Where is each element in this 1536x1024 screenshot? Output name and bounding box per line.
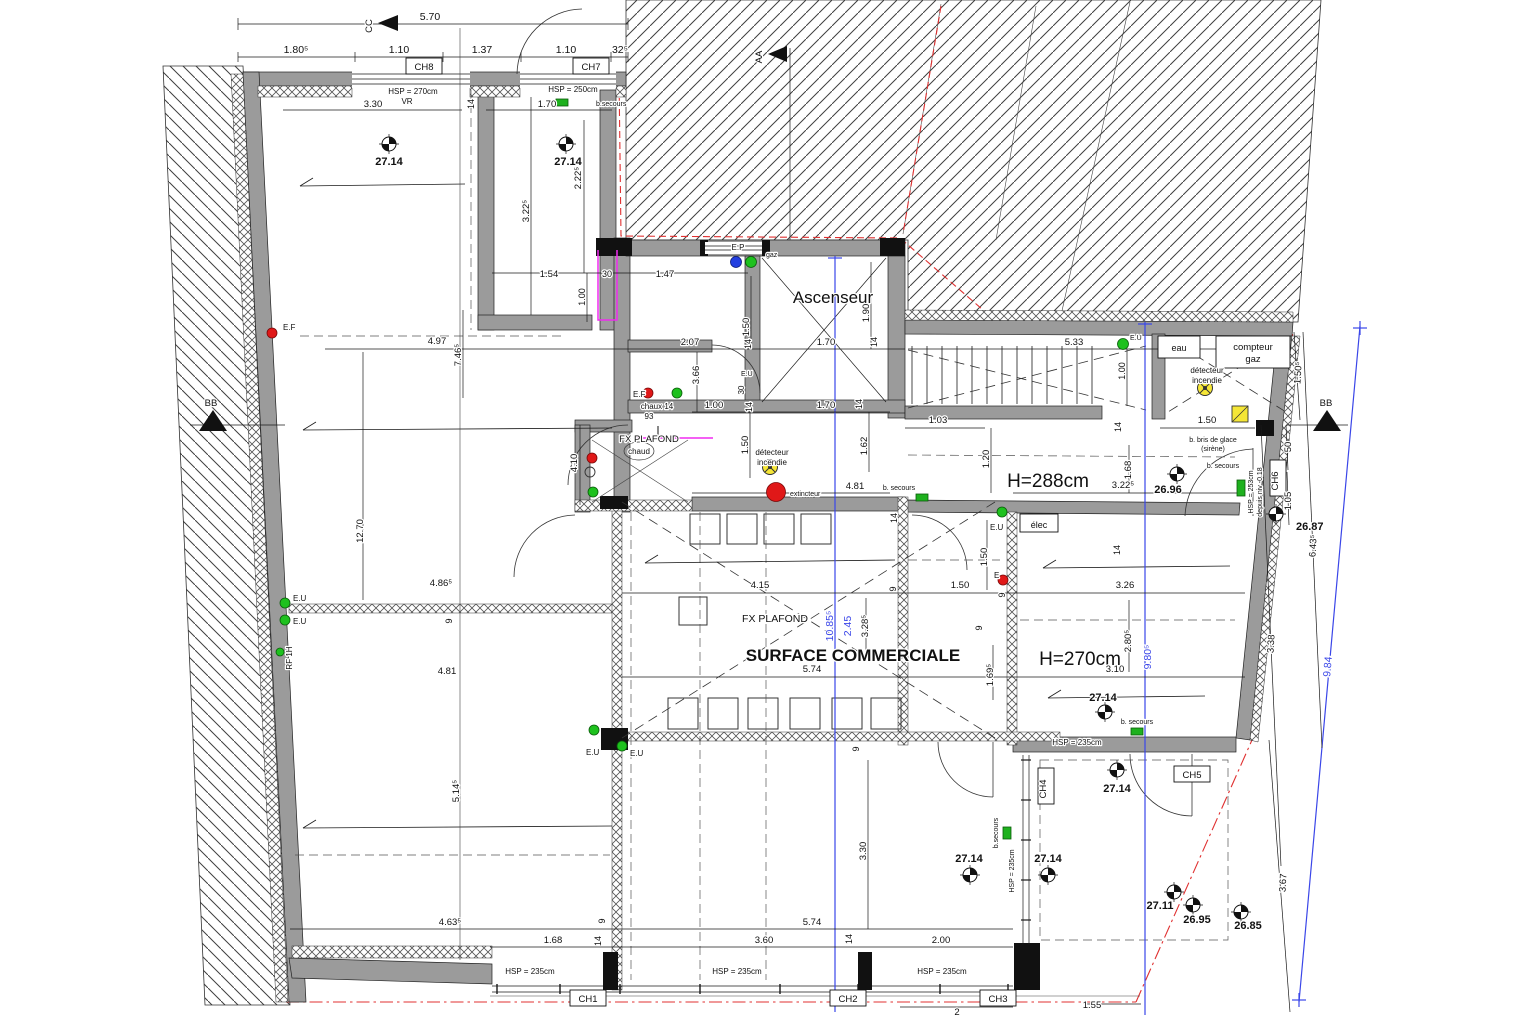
elevation-marker-icon xyxy=(1167,464,1187,484)
chamber-label-ch2: CH2 xyxy=(838,994,857,1005)
floor-plan-svg: 5.70 1.80⁵ 1.10 1.37 1.10 32⁵ CH8 CH7 HS… xyxy=(0,0,1536,1024)
dim-label: 1.50 xyxy=(979,548,990,567)
eu-dot-icon xyxy=(997,507,1007,517)
dim-label: 1.90 xyxy=(861,304,872,323)
showcase-row-top xyxy=(690,514,831,544)
fx-plafond-label: FX PLAFOND xyxy=(742,613,808,625)
dim-label: 1.68 xyxy=(1123,461,1134,480)
glass-break-label: (sirène) xyxy=(1201,446,1225,453)
section-label-cc: CC xyxy=(364,19,375,33)
dim-label: 4.81 xyxy=(846,481,865,492)
eu-label: E.U xyxy=(293,594,307,603)
dim-label: 1.20 xyxy=(981,450,992,469)
dim-label: 3.22⁵ xyxy=(1112,480,1134,491)
dim-label-blue: 10.85⁵ xyxy=(824,611,836,642)
dim-label: 14 xyxy=(743,339,753,349)
ef-label: E.F xyxy=(283,323,296,332)
dim-label: 14 xyxy=(466,99,476,109)
dim-label: 3.22⁵ xyxy=(521,200,532,222)
elevation-marker-icon xyxy=(1164,882,1184,902)
fx-plafond-box xyxy=(679,597,707,625)
level-label: 26.96 xyxy=(1154,484,1182,496)
chamber-label-ch3: CH3 xyxy=(988,994,1007,1005)
ceiling-height-label: HSP = 235cm xyxy=(505,967,555,976)
dim-label: 14 xyxy=(889,513,899,523)
eu-dot-icon xyxy=(589,725,599,735)
ceiling-height-label: HSP = 235cm xyxy=(1052,738,1102,747)
eu-label: E.U xyxy=(741,371,753,378)
site-hatch-top-right xyxy=(626,0,1321,322)
ep-label: E.P xyxy=(732,243,745,252)
ep-dot-icon xyxy=(746,257,757,268)
dim-label: 14 xyxy=(844,934,854,944)
dim-label: 5.74 xyxy=(803,917,822,928)
dim-label: 1.00 xyxy=(577,288,587,306)
dim-label: 93 xyxy=(645,412,654,421)
section-bb-right-icon xyxy=(1313,410,1341,431)
elec-label: élec xyxy=(1031,520,1048,530)
dim-label: 5.70 xyxy=(420,11,441,23)
dim-label: 7.46⁵ xyxy=(453,344,464,366)
dim-label: 2.00 xyxy=(932,935,951,946)
dim-label: 14 xyxy=(854,399,864,409)
elevation-marker-icon xyxy=(1095,702,1115,722)
dim-label: 50 xyxy=(1283,442,1294,453)
dim-label: 2 xyxy=(954,1007,959,1018)
chamber-label-ch4: CH4 xyxy=(1038,779,1049,798)
dim-label: 9 xyxy=(597,918,607,923)
level-label: 27.14 xyxy=(1089,692,1117,704)
dim-label: 9 xyxy=(851,746,861,751)
exit-block-icon xyxy=(1131,728,1143,735)
detector-label: incendie xyxy=(1192,376,1222,385)
dim-label: 14 xyxy=(869,337,879,347)
dim-label: 9 xyxy=(974,625,984,630)
fx-plafond-label: FX PLAFOND xyxy=(619,434,679,445)
dim-label: 1.68 xyxy=(544,935,563,946)
dim-label: 14 xyxy=(1112,545,1122,555)
eu-label: E.U xyxy=(630,749,644,758)
section-label-bb: BB xyxy=(1320,398,1333,409)
dim-label: 1.00 xyxy=(705,400,724,411)
elevation-marker-icon xyxy=(556,134,576,154)
level-label: 27.14 xyxy=(1103,783,1131,795)
chaux-label: chaux 14 xyxy=(641,402,674,411)
chamber-label-ch8: CH8 xyxy=(414,62,433,73)
elevation-marker-icon xyxy=(1231,902,1251,922)
chamber-label-ch1: CH1 xyxy=(578,994,597,1005)
ef-dot-icon xyxy=(267,328,277,338)
exit-block-icon xyxy=(916,494,928,501)
exit-label: b. secours xyxy=(1207,463,1240,470)
elevation-marker-icon xyxy=(960,865,980,885)
dim-label: 1.50 xyxy=(1198,415,1217,426)
dim-label: 5.14⁵ xyxy=(451,780,462,802)
dim-label: 5.74 xyxy=(803,664,822,675)
eu-dot-icon xyxy=(1118,339,1129,350)
elevation-marker-icon xyxy=(1183,895,1203,915)
dim-label: 1.80⁵ xyxy=(284,44,309,56)
dim-label: 1.50⁵ xyxy=(1292,361,1304,384)
eu-dot-icon xyxy=(588,487,598,497)
level-label: 27.14 xyxy=(554,156,582,168)
level-label: 27.11 xyxy=(1147,900,1174,912)
exit-block-icon xyxy=(556,99,568,106)
eu-label: E.U xyxy=(293,617,307,626)
section-label-aa: AA xyxy=(754,50,765,63)
ceiling-height-label: HSP = 250cm xyxy=(548,85,598,94)
chaud-label: chaud xyxy=(628,447,650,456)
eu-dot-icon xyxy=(280,598,290,608)
elevation-marker-icon xyxy=(379,134,399,154)
dim-label: 1.62 xyxy=(859,437,870,456)
detector-label: incendie xyxy=(757,458,787,467)
eu-dot-icon xyxy=(280,615,290,625)
dim-label: 1.50 xyxy=(740,436,751,455)
chamber-label-ch5: CH5 xyxy=(1182,770,1201,781)
gas-meter-label: compteur xyxy=(1233,342,1273,353)
exit-label: b.secours xyxy=(993,817,1000,848)
dim-label: 3.67 xyxy=(1278,873,1290,892)
dim-label: 3.10 xyxy=(1106,664,1125,675)
chamber-label-ch7: CH7 xyxy=(581,62,600,73)
ep-dot-icon xyxy=(731,257,742,268)
dim-label: 3.26 xyxy=(1116,580,1135,591)
dim-label: 2.80⁵ xyxy=(1123,630,1134,652)
ceiling-height-label: HSP = 270cm xyxy=(388,87,438,96)
dim-label: 1.70 xyxy=(817,337,836,348)
dim-label: 1.37 xyxy=(472,44,493,56)
dim-label: 1.03 xyxy=(929,415,948,426)
eu-dot-icon xyxy=(276,648,284,656)
detector-label: détecteur xyxy=(1190,366,1224,375)
elevation-marker-icon xyxy=(1107,760,1127,780)
dim-label: 32⁵ xyxy=(612,44,628,56)
exit-block-icon xyxy=(1237,480,1245,496)
gaz-small-label: gaz xyxy=(766,252,778,259)
ceiling-height-label: HSP = 235cm xyxy=(712,967,762,976)
dim-label-blue: 9.80⁵ xyxy=(1142,645,1154,670)
dim-label: 1.70 xyxy=(538,99,557,110)
dim-label: 3.66 xyxy=(691,366,702,385)
eu-label: E.U xyxy=(586,748,600,757)
extinguisher-icon xyxy=(767,483,786,502)
dim-label: 3.38 xyxy=(1266,634,1278,653)
dim-label: 1.10 xyxy=(389,44,410,56)
level-label: 27.14 xyxy=(955,853,983,865)
dim-label: 1.00 xyxy=(1117,362,1127,380)
ceiling-height-label: depuis niv -0.18 xyxy=(1257,467,1264,517)
dim-label: 3.30 xyxy=(858,842,869,861)
ef-label: E.F xyxy=(633,390,646,399)
dim-label: 6.43⁵ xyxy=(1307,534,1319,557)
dim-label: 1.50 xyxy=(741,318,752,337)
dim-label-blue: 9.84 xyxy=(1321,656,1335,678)
ceiling-height-label: HSP = 235cm xyxy=(1009,849,1016,892)
dim-label: 9 xyxy=(997,592,1007,597)
extinguisher-label: extincteur xyxy=(790,491,821,498)
rf-label: RF 1H xyxy=(285,646,294,669)
ef-dot-icon xyxy=(587,453,597,463)
dim-label: 2.22⁵ xyxy=(573,167,584,189)
level-label: 26.95 xyxy=(1183,914,1211,926)
eu-dot-icon xyxy=(672,388,682,398)
dim-label: 1.05 xyxy=(1283,492,1294,511)
dim-label: 30 xyxy=(602,269,612,279)
dim-label: 3.60 xyxy=(755,935,774,946)
exit-label: b.secours xyxy=(596,101,627,108)
section-cc-icon xyxy=(378,15,398,31)
room-label-h288: H=288cm xyxy=(1007,471,1089,492)
dim-label: 1.70 xyxy=(817,400,836,411)
elevator-shaft xyxy=(762,258,886,402)
dim-label: 12.70 xyxy=(355,519,366,543)
dim-label: 1.50 xyxy=(951,580,970,591)
dim-label: 3.28⁵ xyxy=(860,615,871,637)
vr-label: VR xyxy=(401,97,412,106)
level-label: 27.14 xyxy=(375,156,403,168)
dim-label: 4.97 xyxy=(428,336,447,347)
dim-label: 14 xyxy=(593,936,603,946)
ef-dot-icon xyxy=(998,575,1008,585)
detector-label: détecteur xyxy=(755,448,789,457)
dim-label-blue: 2.45 xyxy=(842,616,854,637)
eu-label: E.U xyxy=(990,523,1004,532)
gas-meter-label: gaz xyxy=(1245,354,1261,365)
level-label: 27.14 xyxy=(1034,853,1062,865)
dim-label: 2.07 xyxy=(681,337,700,348)
dim-label: 1.54 xyxy=(540,269,559,280)
dim-label: 30 xyxy=(737,385,746,394)
showcase-row-bottom xyxy=(668,698,901,729)
eau-label: eau xyxy=(1171,343,1186,353)
dim-label: 4.63⁵ xyxy=(439,917,461,928)
ceiling-height-label: HSP = 235cm xyxy=(917,967,967,976)
exit-block-icon xyxy=(1003,827,1011,839)
dim-label: 14 xyxy=(744,402,754,412)
level-label: 26.87 xyxy=(1296,521,1324,533)
e-label: E xyxy=(994,571,999,580)
dim-label: 1.10 xyxy=(556,44,577,56)
dim-label: 4.10 xyxy=(569,454,580,473)
dim-label: 4.86⁵ xyxy=(430,578,452,589)
eu-label: E.U xyxy=(1130,335,1142,342)
level-label: 26.85 xyxy=(1234,920,1262,932)
dim-label: 9 xyxy=(444,618,454,623)
ceiling-height-label: HSP = 253cm xyxy=(1248,470,1255,513)
elevation-marker-icon xyxy=(1038,865,1058,885)
exit-label: b. secours xyxy=(883,485,916,492)
chamber-label-ch6: CH6 xyxy=(1270,471,1281,490)
dim-label: 5.33 xyxy=(1065,337,1084,348)
dim-label: 9 xyxy=(888,586,898,591)
dim-label: 4.15 xyxy=(751,580,770,591)
dim-label: 1.47 xyxy=(656,269,675,280)
eu-dot-icon xyxy=(617,741,627,751)
dim-label: 4.81 xyxy=(438,666,457,677)
section-label-bb: BB xyxy=(205,398,218,409)
dim-label: 1.69⁵ xyxy=(985,664,996,686)
floor-plan-drawing: 5.70 1.80⁵ 1.10 1.37 1.10 32⁵ CH8 CH7 HS… xyxy=(0,0,1536,1024)
dim-label: 3.30 xyxy=(364,99,383,110)
glass-break-label: b. bris de glace xyxy=(1189,437,1237,444)
exit-label: b. secours xyxy=(1121,719,1154,726)
dim-label: 14 xyxy=(1113,422,1123,432)
dim-label: 1.55 xyxy=(1083,1000,1102,1011)
room-label-surface-commerciale: SURFACE COMMERCIALE xyxy=(746,646,960,665)
